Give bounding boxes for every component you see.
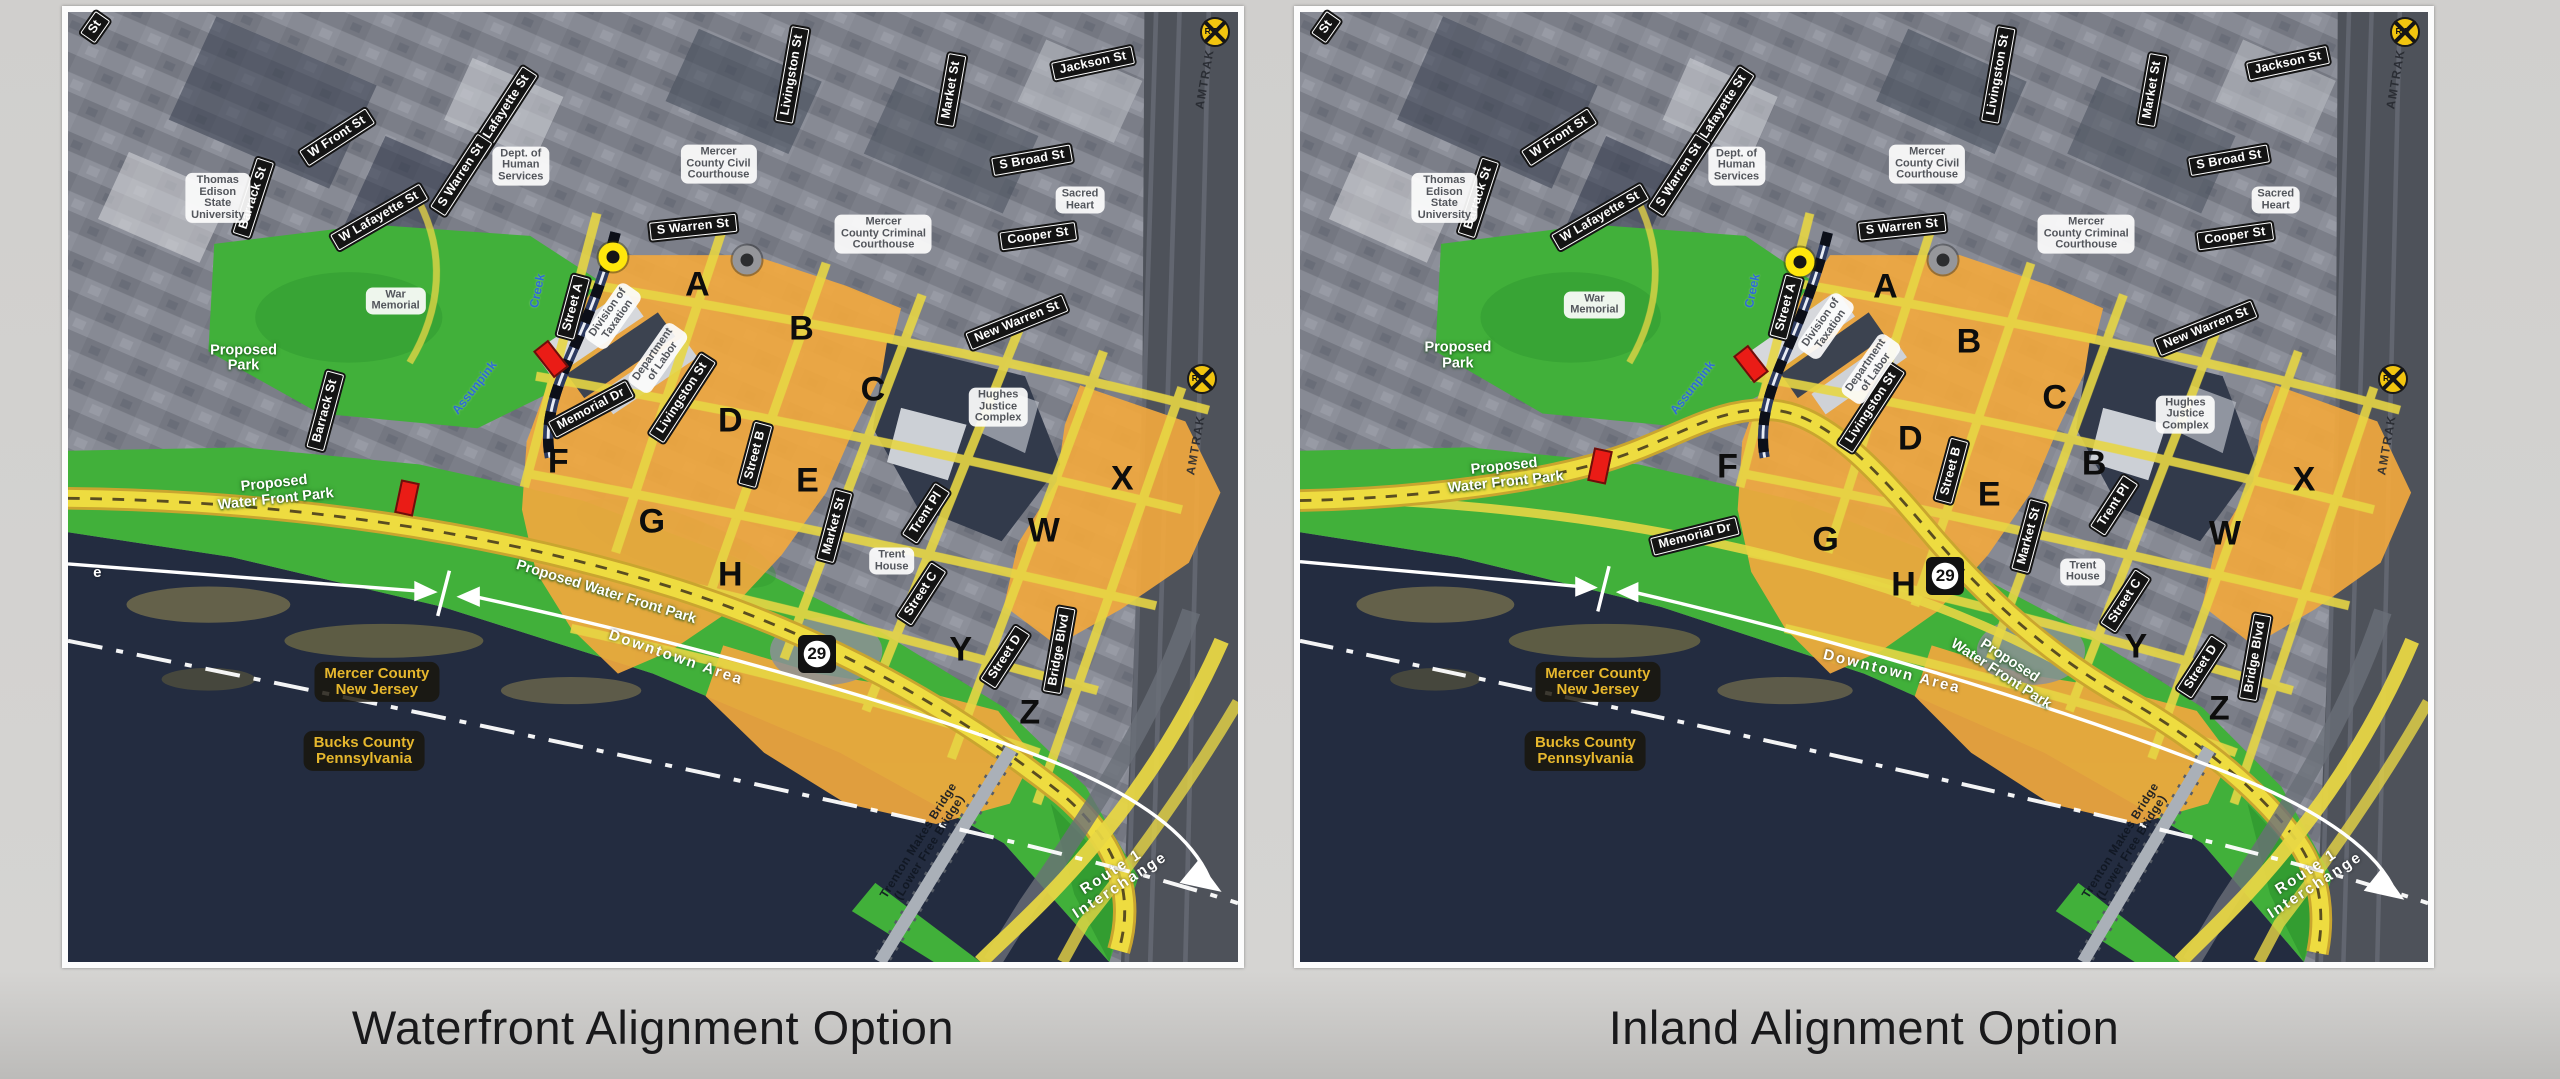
parcel-x: X xyxy=(1111,461,1134,498)
park-label-waterfront-park: Proposed Water Front Park xyxy=(1446,453,1565,496)
county-label-mercer: Mercer County New Jersey xyxy=(1535,662,1660,702)
route-1-interchange-label: Route 1 Interchange xyxy=(1062,836,1171,923)
parcel-d: D xyxy=(718,402,743,439)
station-marker-yellow xyxy=(599,243,628,272)
amtrak-label-lower: AMTRAK xyxy=(1184,414,1207,476)
park-label-waterfront-park-riverside: Proposed Water Front Park xyxy=(514,559,698,629)
caption-waterfront-option: Waterfront Alignment Option xyxy=(352,1000,954,1055)
street-sign-cooper-st: Cooper St xyxy=(2196,222,2273,250)
street-sign-livingston-st-upper: Livingston St xyxy=(1981,26,2015,123)
street-sign-trent-pl: Trent Pl xyxy=(2090,475,2138,536)
trenton-makes-bridge-label: Trenton Makes Bridge (Lower Free Bridge) xyxy=(878,781,971,908)
street-sign-s-broad-st: S Broad St xyxy=(991,145,1073,176)
route-29-shield: 29 xyxy=(1926,557,1964,595)
parcel-b: B xyxy=(1957,323,1982,360)
railroad-crossing-icon-top: R R xyxy=(2390,17,2420,47)
street-sign-new-warren-st: New Warren St xyxy=(965,294,1068,349)
street-sign-w-lafayette-st: W Lafayette St xyxy=(1551,184,1649,251)
place-label-thomas-edison: Thomas Edison State University xyxy=(1412,173,1477,223)
street-sign-new-warren-st: New Warren St xyxy=(2154,301,2257,356)
county-label-bucks: Bucks County Pennsylvania xyxy=(1525,731,1646,771)
creek-label: Creek xyxy=(528,273,548,310)
street-sign-w-front-st: W Front St xyxy=(1521,108,1597,166)
street-sign-barrack-st-city: Barrack St xyxy=(1458,158,1499,238)
closure-marker-river xyxy=(394,480,420,517)
street-sign-market-st-mid: Market St xyxy=(2011,499,2047,573)
street-sign-fragment: St xyxy=(80,11,110,43)
park-label-waterfront-park-riverside: Proposed Water Front Park xyxy=(1948,623,2063,713)
parcel-e: E xyxy=(796,463,819,500)
street-sign-street-a: Street A xyxy=(557,275,590,340)
place-label-thomas-edison: Thomas Edison State University xyxy=(185,173,250,223)
street-sign-memorial-dr: Memorial Dr xyxy=(548,381,634,438)
parcel-f: F xyxy=(548,444,569,481)
station-marker-grey xyxy=(732,245,761,274)
parcel-g: G xyxy=(1812,522,1838,559)
place-label-trent-house: Trent House xyxy=(869,548,915,575)
street-sign-trent-pl: Trent Pl xyxy=(902,482,950,543)
place-label-trent-house: Trent House xyxy=(2060,558,2106,585)
place-label-hughes-justice-complex: Hughes Justice Complex xyxy=(2156,395,2214,434)
station-marker-yellow xyxy=(1785,247,1814,276)
downtown-area-label: Downtown Area xyxy=(1822,647,1963,697)
parcel-z: Z xyxy=(1019,695,1040,732)
street-sign-s-broad-st: S Broad St xyxy=(2189,145,2271,176)
park-label-waterfront-park: Proposed Water Front Park xyxy=(216,470,335,513)
park-label-proposed-park: Proposed Park xyxy=(210,343,277,374)
parcel-b-fragment: B xyxy=(2082,446,2107,483)
street-sign-e-lafayette-st: E Lafayette St xyxy=(1685,65,1754,158)
place-label-hughes-justice-complex: Hughes Justice Complex xyxy=(969,388,1027,427)
street-sign-fragment: St xyxy=(1311,11,1341,43)
closure-marker-river xyxy=(1587,447,1613,484)
street-sign-jackson-st: Jackson St xyxy=(2246,46,2330,80)
edge-letter-fragment: e xyxy=(93,564,104,580)
place-label-criminal-courthouse: Mercer County Criminal Courthouse xyxy=(835,215,932,254)
street-sign-s-warren-st-upper: S Warren St xyxy=(1648,134,1710,216)
county-label-bucks: Bucks County Pennsylvania xyxy=(304,731,425,771)
parcel-h: H xyxy=(1891,566,1916,603)
amtrak-label-upper: AMTRAK xyxy=(1194,47,1217,109)
parcel-w: W xyxy=(2209,515,2241,552)
amtrak-label-upper: AMTRAK xyxy=(2385,47,2408,109)
route-1-interchange-label: Route 1 Interchange xyxy=(2256,836,2365,923)
street-sign-street-c: Street C xyxy=(2100,570,2149,633)
parcel-g: G xyxy=(639,504,665,541)
map-labels-inland: StW Front StE Lafayette StS Warren StW L… xyxy=(1300,12,2428,962)
street-sign-jackson-st: Jackson St xyxy=(1051,46,1135,80)
place-label-criminal-courthouse: Mercer County Criminal Courthouse xyxy=(2038,215,2135,254)
caption-inland-option: Inland Alignment Option xyxy=(1609,1000,2120,1055)
place-label-department-of-labor: Department of Labor xyxy=(626,320,690,395)
parcel-f: F xyxy=(1717,449,1738,486)
map-labels-waterfront: StW Front StE Lafayette StS Warren StW L… xyxy=(68,12,1238,962)
street-sign-bridge-blvd: Bridge Blvd xyxy=(1043,606,1075,694)
street-sign-livingston-st-mid: Livingston St xyxy=(649,353,716,443)
parcel-y: Y xyxy=(949,632,972,669)
street-sign-e-lafayette-st: E Lafayette St xyxy=(469,65,538,158)
creek-label: Creek xyxy=(1743,273,1763,310)
street-sign-s-warren-st-lower: S Warren St xyxy=(1858,213,1946,239)
downtown-area-label: Downtown Area xyxy=(607,627,746,688)
parcel-w: W xyxy=(1028,512,1060,549)
street-sign-bridge-blvd: Bridge Blvd xyxy=(2239,613,2271,701)
street-sign-w-lafayette-st: W Lafayette St xyxy=(330,184,428,251)
parcel-y: Y xyxy=(2125,628,2148,665)
closure-marker-creek xyxy=(1733,344,1769,382)
county-label-mercer: Mercer County New Jersey xyxy=(314,662,439,702)
street-sign-livingston-st-mid: Livingston St xyxy=(1837,363,1904,453)
railroad-crossing-icon-top: R R xyxy=(1200,17,1230,47)
assunpink-creek-label: Assunpink xyxy=(450,359,500,418)
street-sign-street-c: Street C xyxy=(896,563,945,626)
parcel-h: H xyxy=(718,557,743,594)
street-sign-memorial-dr: Memorial Dr xyxy=(1650,517,1740,555)
parcel-c: C xyxy=(2042,379,2067,416)
street-sign-street-b: Street B xyxy=(1934,438,1967,504)
street-sign-market-st-mid: Market St xyxy=(817,489,853,563)
place-label-sacred-heart: Sacred Heart xyxy=(1056,187,1105,214)
street-sign-s-warren-st-lower: S Warren St xyxy=(649,213,737,239)
place-label-division-of-taxation: Division of Taxation xyxy=(583,280,644,351)
railroad-crossing-icon-mid: R R xyxy=(2378,364,2408,394)
place-label-dept-human-services: Dept. of Human Services xyxy=(1708,147,1765,186)
assunpink-creek-label: Assunpink xyxy=(1668,359,1718,418)
parcel-d: D xyxy=(1898,420,1923,457)
place-label-dept-human-services: Dept. of Human Services xyxy=(492,147,549,186)
street-sign-street-b: Street B xyxy=(738,422,771,488)
amtrak-label-lower: AMTRAK xyxy=(2376,414,2399,476)
street-sign-barrack-st-park: Barrack St xyxy=(307,371,344,451)
map-panel-waterfront: StW Front StE Lafayette StS Warren StW L… xyxy=(62,6,1244,968)
place-label-division-of-taxation: Division of Taxation xyxy=(1795,290,1856,361)
parcel-e: E xyxy=(1978,476,2001,513)
parcel-a: A xyxy=(1873,268,1898,305)
map-panel-inland: StW Front StE Lafayette StS Warren StW L… xyxy=(1294,6,2434,968)
parcel-z: Z xyxy=(2209,691,2230,728)
trenton-makes-bridge-label: Trenton Makes Bridge (Lower Free Bridge) xyxy=(2079,781,2172,908)
place-label-war-memorial: War Memorial xyxy=(1564,291,1624,318)
street-sign-cooper-st: Cooper St xyxy=(999,222,1076,250)
place-label-war-memorial: War Memorial xyxy=(365,287,425,314)
place-label-department-of-labor: Department of Labor xyxy=(1839,331,1903,406)
parcel-x: X xyxy=(2293,462,2316,499)
parcel-a: A xyxy=(685,266,710,303)
street-sign-street-d: Street D xyxy=(2177,635,2226,698)
street-sign-barrack-st-city: Barrack St xyxy=(232,158,273,238)
route-29-shield: 29 xyxy=(798,635,836,673)
street-sign-w-front-st: W Front St xyxy=(299,108,375,166)
street-sign-livingston-st-upper: Livingston St xyxy=(775,26,809,123)
street-sign-street-a: Street A xyxy=(1770,275,1803,340)
railroad-crossing-icon-mid: R R xyxy=(1187,364,1217,394)
station-marker-grey xyxy=(1928,245,1957,274)
parcel-b: B xyxy=(789,311,814,348)
street-sign-market-st-upper: Market St xyxy=(2137,53,2167,127)
street-sign-street-d: Street D xyxy=(981,626,1030,689)
closure-marker-creek xyxy=(533,340,569,378)
parcel-c: C xyxy=(861,372,886,409)
park-label-proposed-park: Proposed Park xyxy=(1424,340,1491,371)
place-label-sacred-heart: Sacred Heart xyxy=(2251,187,2300,214)
street-sign-market-st-upper: Market St xyxy=(936,53,966,127)
place-label-civil-courthouse: Mercer County Civil Courthouse xyxy=(680,145,756,184)
street-sign-s-warren-st-upper: S Warren St xyxy=(430,134,492,216)
place-label-civil-courthouse: Mercer County Civil Courthouse xyxy=(1889,145,1965,184)
